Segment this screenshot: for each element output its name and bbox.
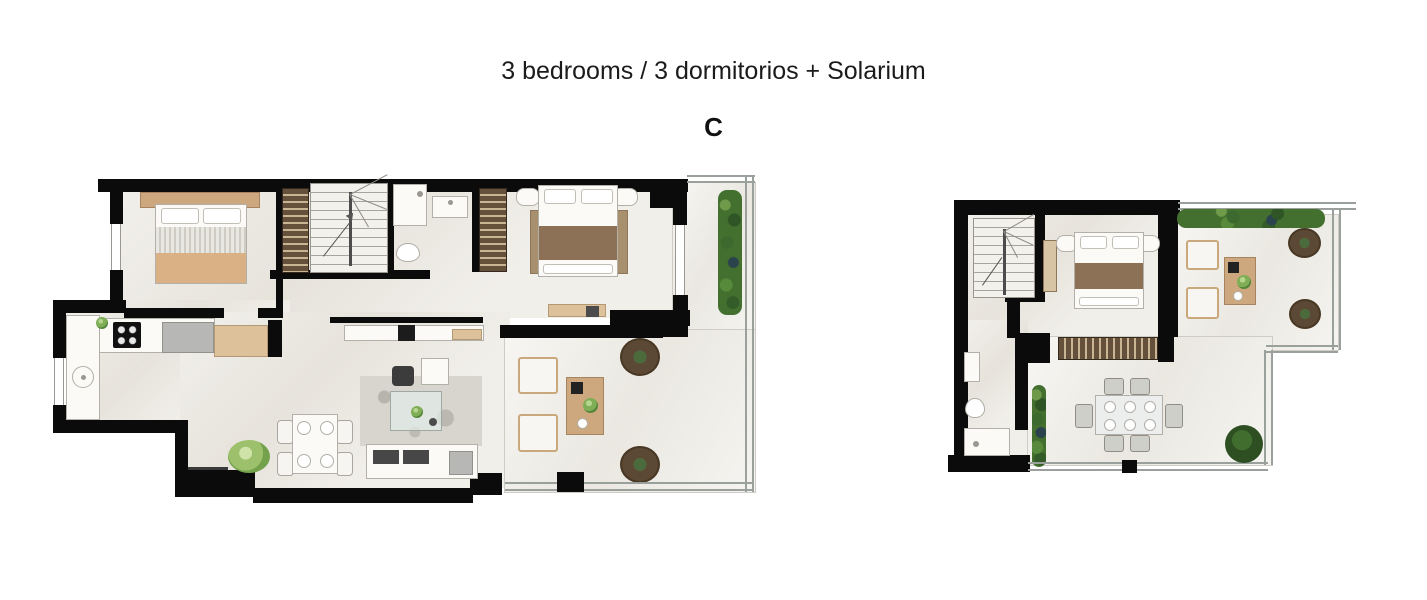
wall xyxy=(673,295,688,337)
round-rug xyxy=(620,338,660,376)
wall xyxy=(110,192,123,224)
kitchen-plant xyxy=(96,317,108,329)
plate xyxy=(1104,419,1116,431)
wall xyxy=(268,320,282,357)
railing-post xyxy=(1122,460,1137,473)
upper-terrace-hedge xyxy=(718,190,742,315)
coffee-table-glass xyxy=(390,391,442,431)
pillow xyxy=(1080,236,1107,249)
terrace-railing-right-lower xyxy=(1264,350,1273,465)
plan-main-floor xyxy=(53,170,758,505)
sofa xyxy=(366,444,478,479)
stair-rail xyxy=(349,192,352,266)
staircase-main xyxy=(310,183,388,273)
sun-lounger xyxy=(1186,240,1219,270)
plate xyxy=(297,454,311,468)
plate xyxy=(320,421,334,435)
terrace-railing-right-upper xyxy=(1332,210,1341,350)
plate xyxy=(320,454,334,468)
wall-media xyxy=(330,317,483,323)
sink-drain xyxy=(81,375,86,380)
staircase-solarium xyxy=(973,218,1035,298)
plan-solarium-floor xyxy=(940,195,1360,485)
terrace-railing-right xyxy=(745,175,754,492)
outdoor-chair xyxy=(1165,404,1183,428)
plate xyxy=(1124,419,1136,431)
bed1-blanket xyxy=(156,253,246,283)
sun-lounger xyxy=(518,414,558,452)
plan-letter: C xyxy=(0,112,1427,143)
kitchen-hob xyxy=(113,322,141,348)
tray xyxy=(1228,262,1239,273)
wall xyxy=(1158,337,1174,362)
kitchen-wood-cabinet xyxy=(214,325,268,357)
sun-lounger xyxy=(1186,287,1219,319)
sofa-cushion xyxy=(403,450,429,464)
plate xyxy=(1104,401,1116,413)
window-bedroom2-terrace xyxy=(675,225,685,295)
outdoor-dining-table xyxy=(1095,395,1163,435)
bed3-blanket xyxy=(1075,263,1143,289)
bed2-footboard xyxy=(543,264,613,274)
round-rug xyxy=(1289,299,1321,329)
page-title: 3 bedrooms / 3 dormitorios + Solarium xyxy=(0,57,1427,86)
dining-plant xyxy=(228,440,270,473)
coffee-table-decor xyxy=(429,418,437,426)
outdoor-chair xyxy=(1130,378,1150,395)
window-bedroom1 xyxy=(111,224,121,270)
wall xyxy=(53,420,188,433)
tv xyxy=(398,325,415,341)
pillow xyxy=(544,189,576,204)
wall xyxy=(53,300,126,313)
sofa-cushion xyxy=(373,450,399,464)
terrace-side-table xyxy=(566,377,604,435)
wall xyxy=(500,325,663,338)
washbasin-solarium xyxy=(964,352,980,382)
shower-solarium xyxy=(964,428,1010,456)
bed2 xyxy=(538,185,618,277)
wall xyxy=(258,308,283,318)
wardrobe-1 xyxy=(282,188,309,273)
terrace-railing-bottom xyxy=(1028,462,1268,471)
bed3-footboard xyxy=(1079,297,1139,306)
terrace-tree xyxy=(1225,425,1263,463)
stair-direction-line xyxy=(323,220,352,257)
terrace-side-table xyxy=(1224,257,1256,305)
plate xyxy=(1144,419,1156,431)
kitchen-sink xyxy=(72,366,94,388)
side-table-dark xyxy=(392,366,414,386)
bed3 xyxy=(1074,232,1144,309)
pillow xyxy=(1112,236,1139,249)
stair-rail xyxy=(1003,229,1006,295)
toilet xyxy=(396,243,420,262)
sofa-throw xyxy=(449,451,473,475)
stair-winder-line xyxy=(350,174,388,195)
wall xyxy=(124,308,224,318)
plate xyxy=(1144,401,1156,413)
plate xyxy=(297,421,311,435)
railing-post xyxy=(557,472,584,491)
window-kitchen xyxy=(54,358,64,405)
dining-chair xyxy=(336,452,353,476)
wall xyxy=(253,488,473,503)
kitchen-fridge xyxy=(162,322,214,353)
entry-door xyxy=(188,467,228,470)
dining-chair xyxy=(336,420,353,444)
floor-plan-sheet: 3 bedrooms / 3 dormitorios + Solarium C xyxy=(0,0,1427,600)
washbasin xyxy=(432,196,468,218)
outdoor-chair xyxy=(1104,435,1124,452)
terrace-railing-step xyxy=(1266,345,1338,353)
wall xyxy=(1015,363,1028,430)
plate xyxy=(1124,401,1136,413)
tray xyxy=(571,382,583,394)
outdoor-chair xyxy=(1130,435,1150,452)
dining-table xyxy=(292,414,338,474)
wall xyxy=(1007,293,1020,338)
stair-direction-line xyxy=(982,257,1002,285)
shower-drain xyxy=(417,191,423,197)
wall xyxy=(53,313,66,358)
basin-faucet xyxy=(448,200,453,205)
toilet-solarium xyxy=(965,398,985,418)
round-rug xyxy=(1288,228,1321,258)
decor xyxy=(1233,291,1243,301)
wall xyxy=(1015,333,1050,363)
decor xyxy=(577,418,588,429)
table-plant xyxy=(583,398,598,413)
outdoor-chair xyxy=(1075,404,1093,428)
shower-drain xyxy=(973,441,979,447)
bedroom3-runner-rug xyxy=(1043,240,1057,292)
vertical-hedge xyxy=(1032,385,1046,467)
bed2-nightstand-left xyxy=(516,188,540,206)
wall xyxy=(175,420,188,477)
stair-winder-line xyxy=(350,194,387,210)
stair-direction-arrow xyxy=(346,210,357,220)
coffee-table-plant xyxy=(411,406,423,418)
bed2-blanket xyxy=(539,226,617,260)
media-console-wood xyxy=(452,329,482,340)
pillow xyxy=(581,189,613,204)
wall xyxy=(472,182,479,272)
pillow xyxy=(203,208,241,224)
bed1 xyxy=(155,204,247,284)
shower-tray xyxy=(393,184,427,226)
outdoor-chair xyxy=(1104,378,1124,395)
wall xyxy=(673,185,687,225)
terrace-hedge-top xyxy=(1177,209,1325,228)
wardrobe-solarium xyxy=(1058,337,1158,360)
sun-lounger xyxy=(518,357,558,394)
table-plant xyxy=(1237,275,1251,289)
bedroom2-desk-chair xyxy=(586,306,599,317)
wall xyxy=(948,455,1030,472)
bed1-linen xyxy=(156,227,246,253)
lower-terrace-railing-bottom xyxy=(505,482,754,491)
armchair xyxy=(421,358,449,385)
pillow xyxy=(161,208,199,224)
wall xyxy=(955,200,1180,215)
round-rug xyxy=(620,446,660,483)
wall xyxy=(175,470,255,497)
wall xyxy=(1158,200,1178,337)
wardrobe-2 xyxy=(479,188,507,272)
